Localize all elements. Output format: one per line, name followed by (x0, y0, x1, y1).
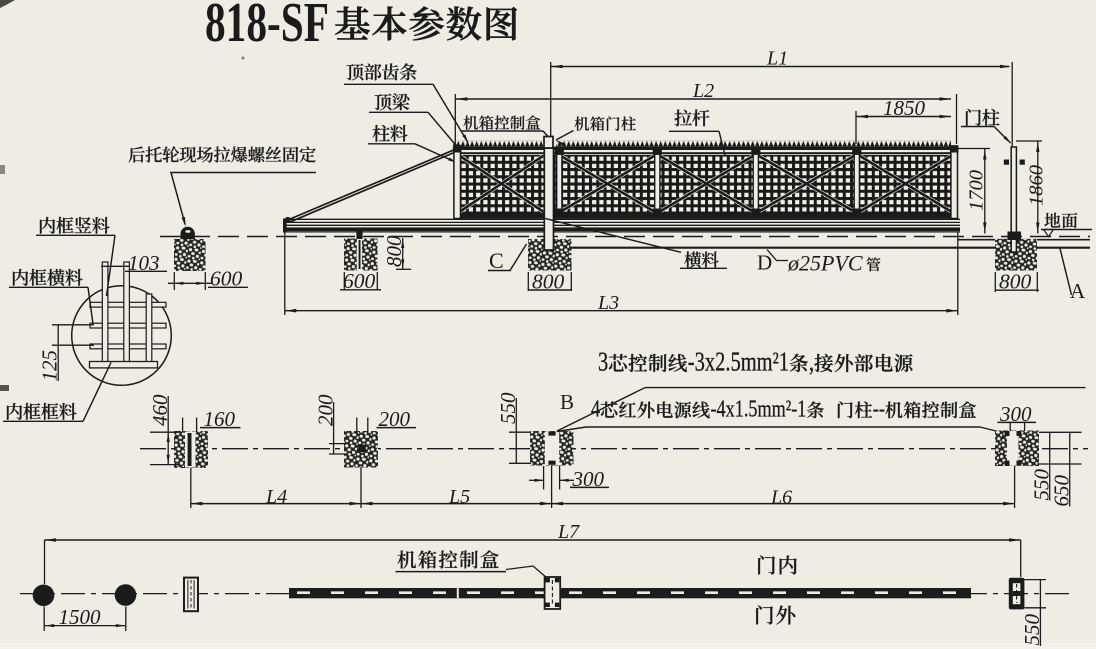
svg-text:L2: L2 (692, 80, 714, 102)
svg-text:-4x1.5mm²-1: -4x1.5mm²-1 (711, 397, 807, 423)
svg-text:550: 550 (496, 392, 520, 424)
svg-text:--: -- (873, 397, 885, 423)
svg-text:1860: 1860 (1026, 165, 1048, 206)
svg-text:3: 3 (598, 346, 608, 376)
svg-text:A: A (1070, 279, 1086, 303)
svg-text:,: , (809, 346, 814, 376)
svg-text:818-SF: 818-SF (205, 0, 329, 54)
svg-text:D: D (757, 251, 772, 275)
svg-text:1500: 1500 (59, 605, 102, 629)
svg-text:B: B (560, 390, 574, 414)
svg-text:800: 800 (382, 235, 406, 267)
svg-text:125: 125 (38, 350, 62, 382)
svg-text:L4: L4 (265, 486, 287, 508)
svg-text:460: 460 (148, 394, 172, 426)
svg-text:1700: 1700 (966, 170, 988, 211)
svg-text:650: 650 (1050, 475, 1074, 507)
svg-text:L6: L6 (770, 487, 792, 509)
svg-text:L3: L3 (597, 292, 619, 314)
svg-text:L1: L1 (766, 48, 788, 70)
svg-text:L7: L7 (557, 521, 580, 543)
svg-text:1850: 1850 (883, 96, 926, 120)
svg-text:C: C (489, 248, 504, 273)
svg-text:ø25PVC: ø25PVC (787, 251, 863, 276)
svg-text:200: 200 (314, 394, 338, 426)
svg-text:4: 4 (591, 397, 600, 423)
svg-text:550: 550 (1020, 614, 1044, 646)
svg-text:L5: L5 (448, 486, 470, 508)
svg-text:-3x2.5mm²1: -3x2.5mm²1 (688, 346, 789, 376)
